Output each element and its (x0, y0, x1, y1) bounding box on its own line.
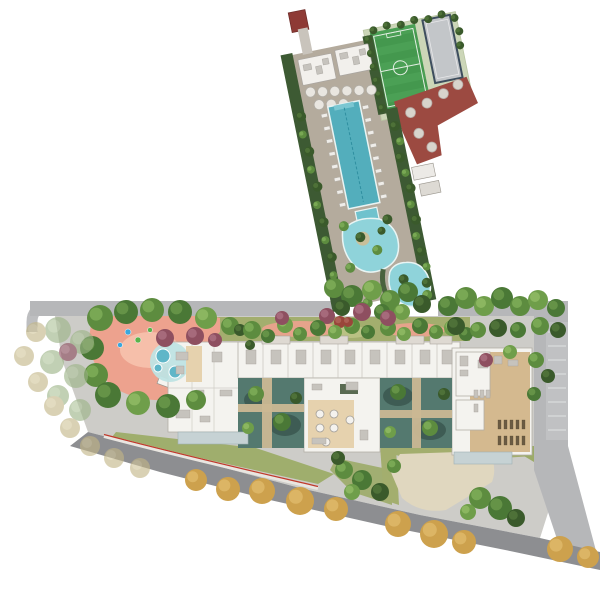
tree-highlight (392, 386, 400, 394)
playground-dots-item (135, 337, 141, 343)
tree-highlight (362, 326, 369, 333)
strip-cabana-furniture-item (303, 63, 312, 70)
site-plan (0, 0, 600, 600)
tree-highlight (71, 401, 82, 412)
building-furniture-item (474, 404, 478, 412)
building-furniture-item (271, 350, 281, 364)
building-furniture-item (176, 352, 188, 360)
tree-highlight (326, 280, 336, 290)
tree-highlight (423, 523, 437, 537)
tree-highlight (98, 385, 111, 398)
courtyard-right-path-2 (412, 378, 421, 448)
tree-highlight (326, 499, 338, 511)
strip-cabana-furniture-item (315, 65, 322, 74)
building-furniture-item (345, 350, 355, 364)
tree-highlight (276, 312, 283, 319)
tree-highlight (476, 298, 486, 308)
tree-highlight (235, 325, 241, 331)
cafe-tables-item (316, 410, 324, 418)
tree-highlight (218, 479, 230, 491)
tree-highlight (480, 354, 487, 361)
gym-equipment-item (510, 420, 513, 429)
tree-highlight (197, 309, 208, 320)
gym-equipment-item (522, 436, 525, 445)
tree-highlight (493, 289, 504, 300)
strip-cabana-furniture-item (352, 56, 359, 65)
building-furniture-item (460, 370, 468, 376)
building-furniture-item (296, 350, 306, 364)
tree-highlight (396, 306, 404, 314)
tree-highlight (90, 308, 103, 321)
tree-highlight (346, 486, 354, 494)
tree-highlight (223, 319, 232, 328)
tree-highlight (188, 392, 198, 402)
gym-equipment-item (510, 436, 513, 445)
tree-highlight (16, 348, 26, 358)
tree-highlight (388, 514, 401, 527)
tree-highlight (246, 341, 251, 346)
building-furniture-item (346, 382, 358, 390)
building-furniture-item (246, 350, 256, 364)
tree-highlight (209, 334, 216, 341)
building-furniture-item (460, 356, 468, 366)
tree-highlight (142, 300, 154, 312)
tree-highlight (491, 321, 500, 330)
tree-highlight (449, 319, 458, 328)
tree-highlight (329, 326, 336, 333)
tree-highlight (504, 346, 511, 353)
tree-highlight (398, 328, 405, 335)
tree-highlight (512, 324, 520, 332)
building-furniture-item (494, 356, 502, 364)
gym-equipment-item (504, 436, 507, 445)
tree-highlight (528, 388, 535, 395)
tree-highlight (61, 345, 70, 354)
tree-highlight (294, 328, 301, 335)
tree-highlight (252, 481, 265, 494)
strip-cabana-furniture-item (339, 52, 348, 59)
tree-highlight (66, 366, 78, 378)
building-furniture-item (370, 350, 380, 364)
tree-highlight (472, 324, 480, 332)
tree-highlight (454, 532, 466, 544)
tree-highlight (509, 511, 518, 520)
tree-highlight (533, 319, 542, 328)
tree-highlight (549, 301, 558, 310)
tree-highlight (440, 298, 450, 308)
strip-cabana-furniture-item (359, 48, 366, 55)
gym-equipment-item (516, 420, 519, 429)
right-wing-room-2 (456, 400, 484, 430)
cafe-tables-item (330, 424, 338, 432)
tree-highlight (30, 374, 40, 384)
tree-highlight (552, 324, 560, 332)
tree-highlight (385, 427, 391, 433)
tree-highlight (439, 389, 445, 395)
tree-highlight (373, 485, 382, 494)
building-furniture-item (474, 390, 478, 398)
tree-highlight (414, 320, 422, 328)
tree-highlight (382, 312, 390, 320)
tree-highlight (382, 292, 392, 302)
building-furniture-item (312, 438, 326, 444)
building-furniture-item (486, 390, 490, 398)
canopy-left (178, 432, 248, 444)
cafe-tables-item (316, 424, 324, 432)
tree-highlight (291, 393, 297, 399)
tree-highlight (187, 471, 198, 482)
tree-highlight (336, 302, 344, 310)
tree-highlight (550, 539, 563, 552)
building-furniture-item (312, 384, 322, 390)
gym-equipment-item (516, 436, 519, 445)
tree-highlight (343, 287, 354, 298)
tree-highlight (530, 292, 540, 302)
building-furniture-item (395, 350, 405, 364)
building-furniture-item (321, 350, 331, 364)
tree-highlight (579, 548, 590, 559)
kids-wood-deck (186, 346, 202, 382)
tree-highlight (355, 305, 364, 314)
building-furniture-item (508, 360, 518, 366)
courtyard-left-path-2 (262, 378, 272, 448)
building-furniture-item (220, 390, 232, 396)
tree-highlight (457, 289, 468, 300)
tree-highlight (471, 489, 482, 500)
tree-highlight (72, 332, 84, 344)
building-furniture-item (176, 366, 184, 374)
tree-highlight (42, 352, 54, 364)
playground-dots-item (118, 343, 123, 348)
tree-highlight (250, 388, 258, 396)
tree-highlight (116, 302, 128, 314)
gym-equipment-item (498, 420, 501, 429)
canopy-right (454, 452, 512, 464)
kids-pools-item (154, 364, 162, 372)
tree-highlight (275, 415, 284, 424)
tree-highlight (158, 396, 170, 408)
tree-highlight (490, 498, 502, 510)
tree-highlight (530, 354, 538, 362)
tree-highlight (243, 423, 249, 429)
tree-highlight (321, 310, 329, 318)
tree-highlight (158, 331, 167, 340)
tree-highlight (400, 284, 410, 294)
tree-highlight (128, 393, 140, 405)
tree-highlight (62, 420, 72, 430)
building-furniture-item (212, 352, 222, 362)
tree-highlight (344, 318, 349, 323)
cafe-tables-item (330, 410, 338, 418)
tree-highlight (415, 297, 424, 306)
tree-highlight (542, 370, 549, 377)
playground-dots-item (125, 329, 131, 335)
tree-highlight (48, 320, 61, 333)
tree-highlight (512, 298, 522, 308)
gym-equipment-item (504, 420, 507, 429)
tree-highlight (188, 329, 197, 338)
tree-highlight (28, 324, 38, 334)
tree-highlight (312, 322, 320, 330)
tree-highlight (86, 365, 98, 377)
tree-highlight (170, 302, 182, 314)
tree-highlight (82, 438, 92, 448)
cafe-tables-item (346, 416, 354, 424)
gym-equipment-item (522, 420, 525, 429)
building-furniture-item (420, 350, 430, 364)
tree-highlight (245, 323, 254, 332)
tree-highlight (289, 490, 303, 504)
building-furniture-item (360, 430, 368, 440)
tree-highlight (364, 282, 374, 292)
building-furniture-item (480, 390, 484, 398)
tree-highlight (354, 472, 364, 482)
tree-highlight (132, 460, 142, 470)
strip-cabana-furniture-item (322, 58, 329, 65)
tree-highlight (332, 452, 339, 459)
tree-highlight (106, 450, 116, 460)
building-furniture-item (200, 416, 210, 422)
tree-highlight (46, 398, 56, 408)
gym-equipment-item (498, 436, 501, 445)
building-furniture-item (442, 350, 452, 364)
tree-highlight (388, 460, 395, 467)
kids-pools-item (156, 349, 170, 363)
tree-highlight (262, 330, 269, 337)
tree-highlight (335, 317, 341, 323)
tree-highlight (424, 422, 432, 430)
tree-highlight (462, 506, 470, 514)
tree-highlight (430, 326, 437, 333)
playground-dots-item (148, 328, 153, 333)
